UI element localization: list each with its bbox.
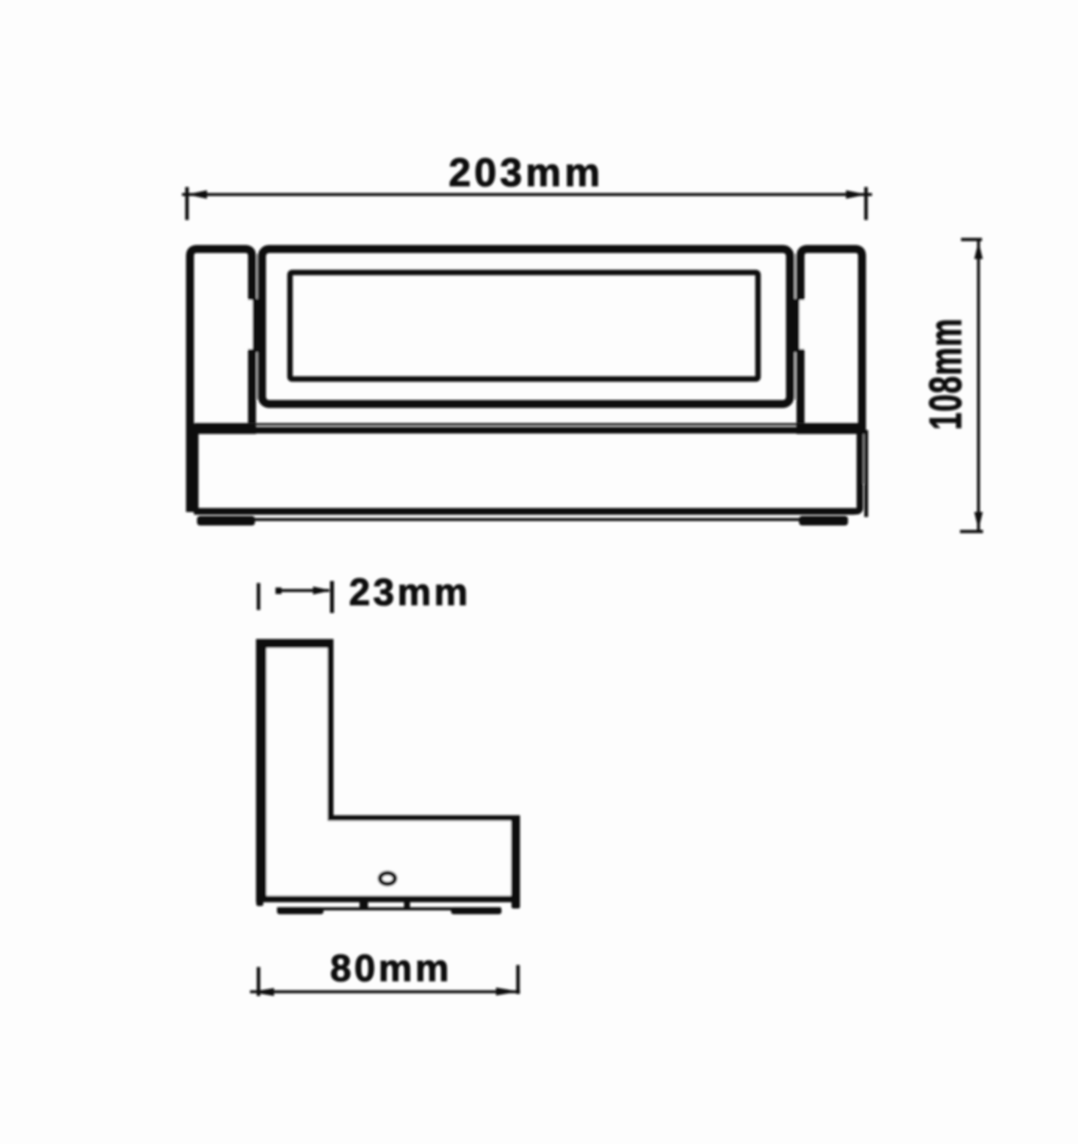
svg-text:108mm: 108mm	[922, 318, 972, 430]
svg-text:23mm: 23mm	[349, 572, 471, 614]
svg-text:203mm: 203mm	[449, 151, 604, 195]
svg-text:80mm: 80mm	[330, 948, 452, 990]
